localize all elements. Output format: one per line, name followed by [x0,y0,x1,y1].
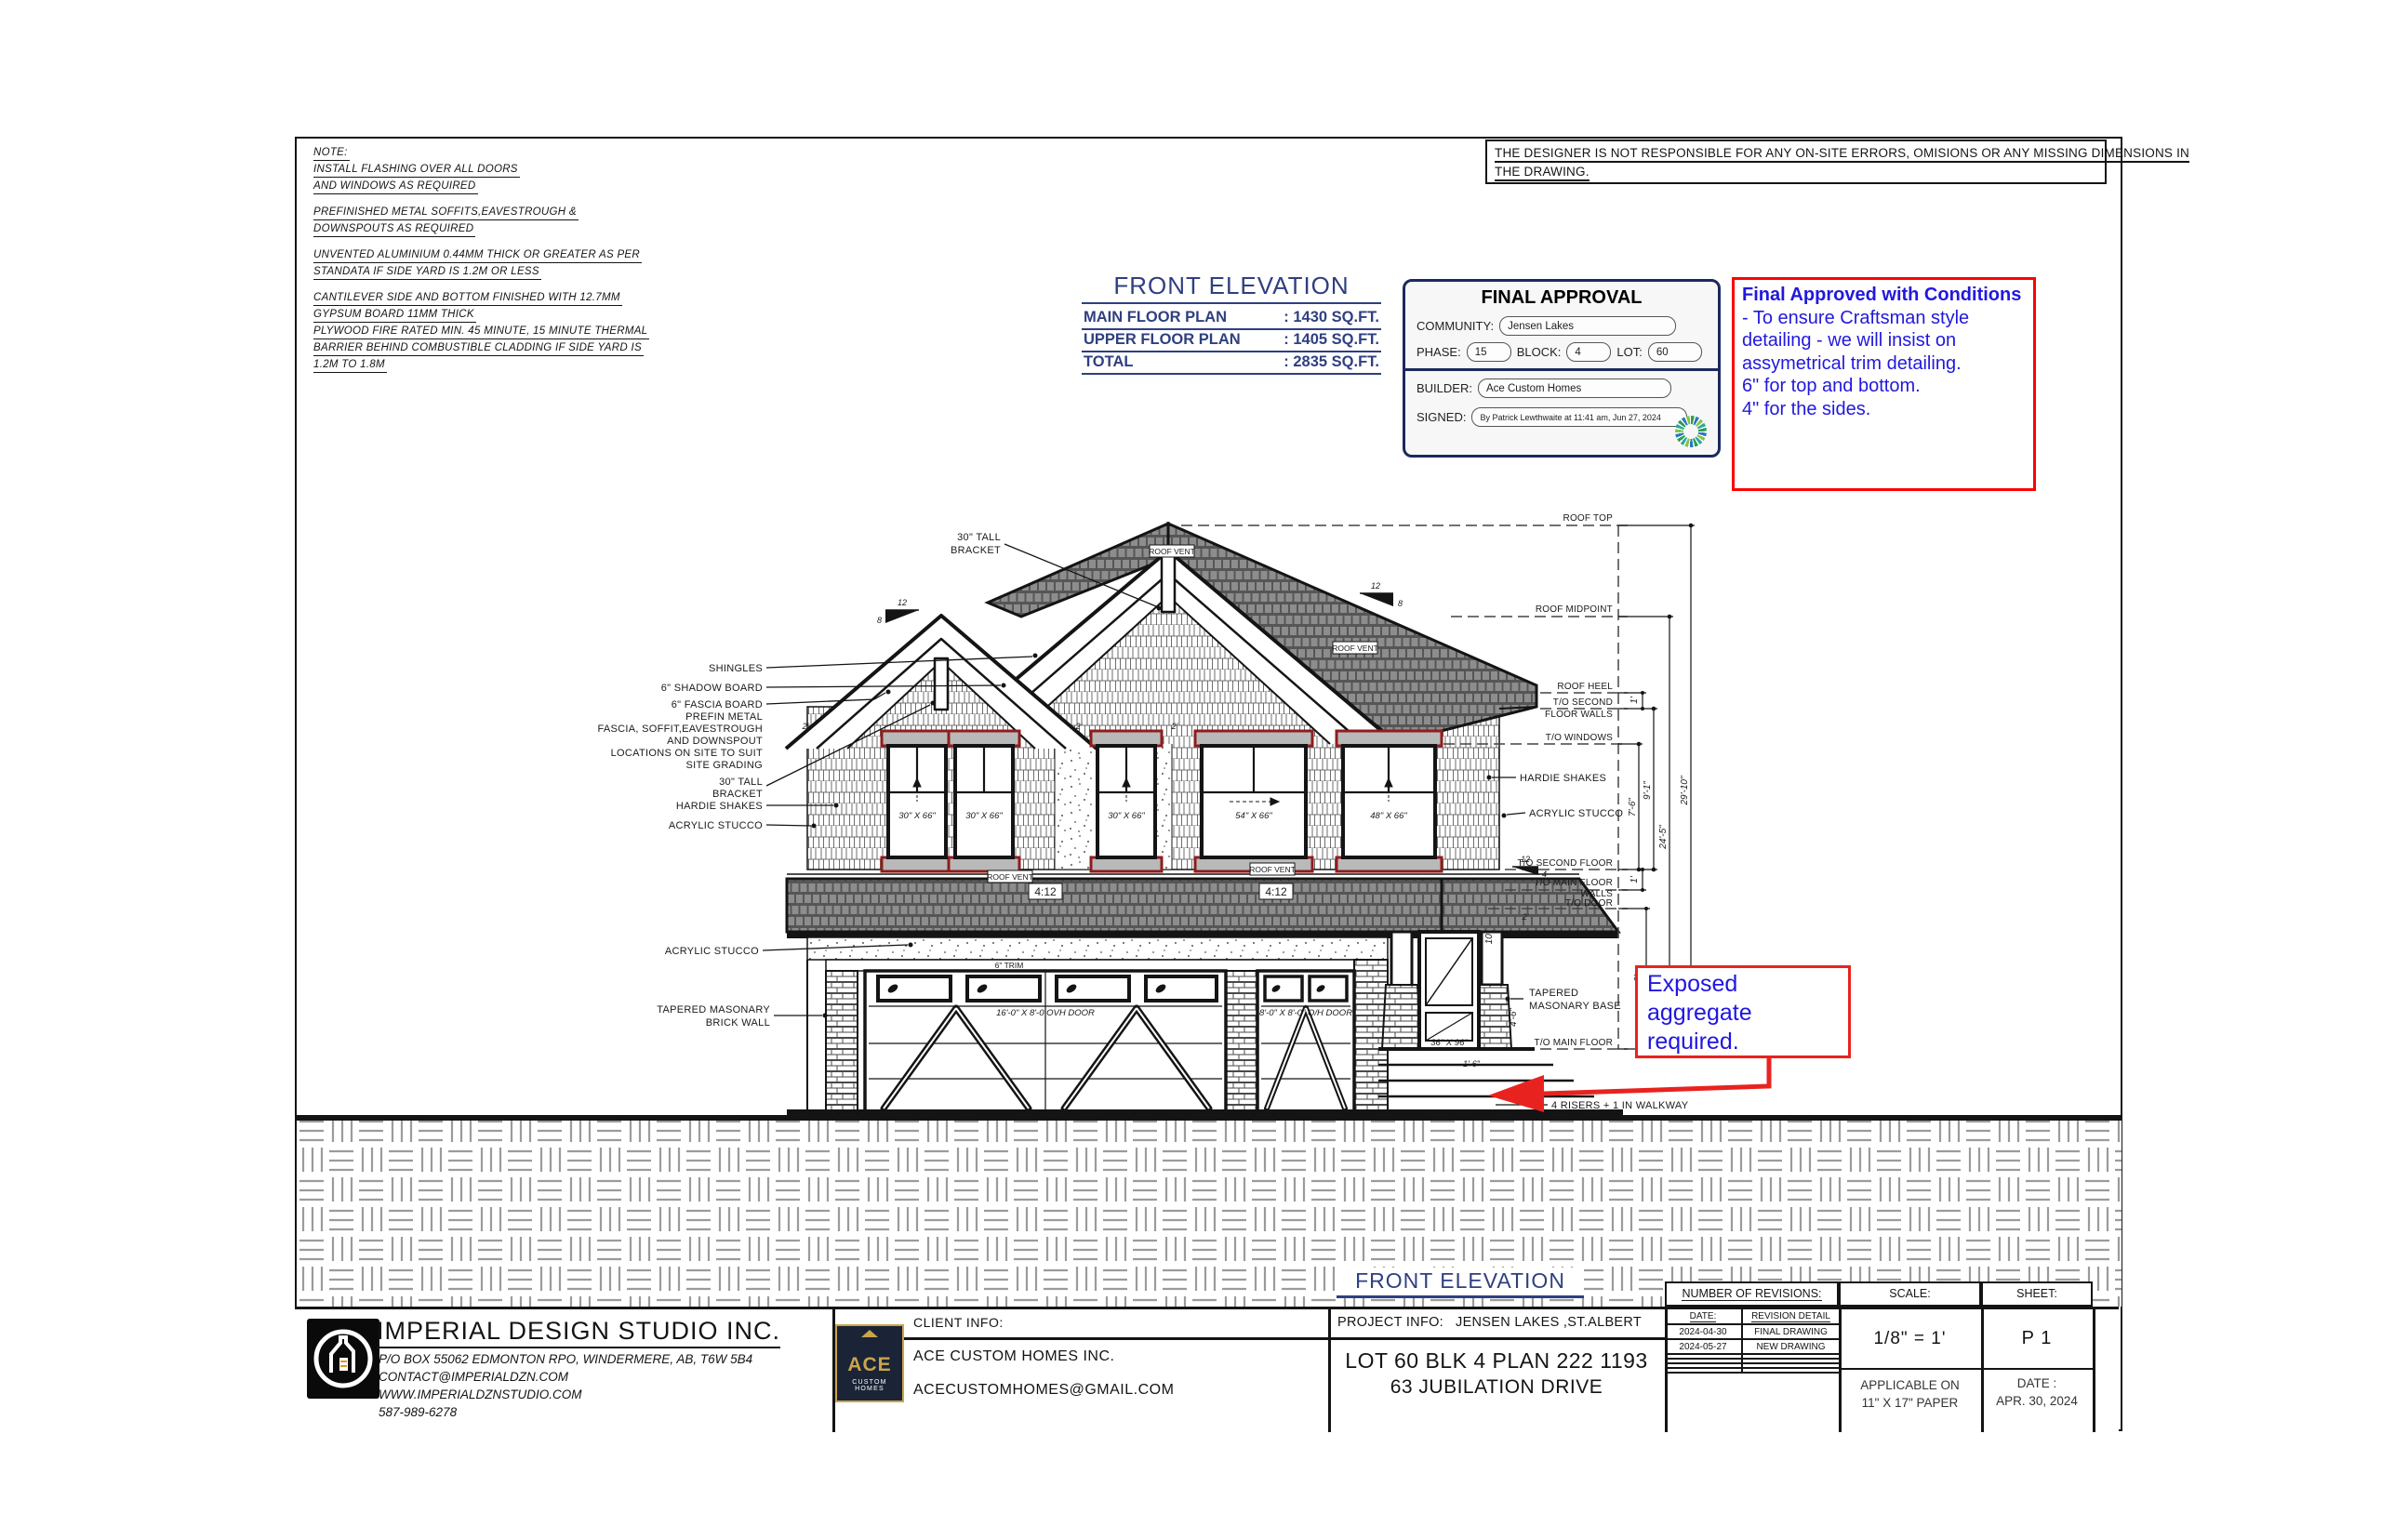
revision-date [1665,1364,1743,1367]
builder-field: Ace Custom Homes [1478,378,1671,398]
exposed-note-line: aggregate [1647,999,1839,1028]
scale-header-box: SCALE: [1839,1281,1981,1307]
community-label: COMMUNITY: [1417,319,1494,333]
callout-bracket-top: BRACKET [951,545,1001,556]
callout-acrylic-stucco: ACRYLIC STUCCO [665,946,759,957]
slope-num: 8 [877,616,882,625]
roof-vent-label: ROOF VENT [1249,865,1296,874]
dim-text: 2' [802,722,809,731]
paper-note-line: APPLICABLE ON [1839,1376,1981,1394]
disclaimer-line: THE DESIGNER IS NOT RESPONSIBLE FOR ANY … [1495,146,2189,163]
dim-text: 2' [1522,912,1529,922]
area-value: : 2835 SQ.FT. [1284,353,1379,371]
imperial-website: WWW.IMPERIALDZNSTUDIO.COM [379,1386,752,1403]
conditions-text: - To ensure Craftsman style detailing - … [1742,308,1969,374]
stamp-divider [1405,368,1718,371]
area-row: MAIN FLOOR PLAN : 1430 SQ.FT. [1082,308,1381,330]
callout-fascia: LOCATIONS ON SITE TO SUIT [611,748,763,759]
front-elevation-drawing: 30" X 66" 30" X 66" 30" X 66" 54" X 66" … [595,513,1832,1164]
callout-bracket-top: 30" TALL [957,532,1001,543]
window-size-label: 30" X 66" [965,811,1003,821]
window-size-label: 30" X 66" [1108,811,1145,821]
project-header-label: PROJECT INFO: [1337,1315,1443,1330]
imperial-email: CONTACT@IMPERIALDZN.COM [379,1368,752,1386]
callout-masonry-base: MASONARY BASE [1529,1001,1621,1012]
callout-acrylic-stucco: ACRYLIC STUCCO [669,820,763,831]
garage-door-double: 16'-0" X 8'-0 OVH DOOR [865,971,1226,1112]
client-email: ACECUSTOMHOMES@GMAIL.COM [913,1382,1174,1399]
note-line: PREFINISHED METAL SOFFITS,EAVESTROUGH & [313,206,579,220]
roof-slope-label: 4:12 [1265,885,1287,898]
revision-date: 2024-05-27 [1665,1340,1743,1353]
level-label: ROOF MIDPOINT [1536,604,1613,615]
revision-row: 2024-05-27 NEW DRAWING [1665,1340,1839,1355]
sheet-date: DATE : APR. 30, 2024 [1981,1374,2093,1410]
callout-acrylic-stucco: ACRYLIC STUCCO [1529,808,1623,819]
general-notes: NOTE: INSTALL FLASHING OVER ALL DOORS AN… [313,147,713,385]
dim-text: 1' [1629,875,1640,883]
revision-detail [1743,1369,1839,1372]
revision-detail [1743,1355,1839,1358]
imperial-name: IMPERIAL DESIGN STUDIO INC. [377,1317,780,1348]
phase-field: 15 [1467,342,1511,362]
stairs-label: 4 RISERS + 1 IN WALKWAY [1551,1100,1689,1111]
title-block: IMPERIAL DESIGN STUDIO INC. P/O BOX 5506… [295,1307,2119,1432]
sheet-header: SHEET: [2016,1287,2057,1300]
dim-text: 10" [1484,930,1495,944]
entry-porch: 36" X 96" [1378,932,1594,1096]
dim-text: 9'-1" [1643,781,1653,800]
dim-text: 29'-10" [1680,776,1690,805]
note-paragraph: CANTILEVER SIDE AND BOTTOM FINISHED WITH… [313,292,713,373]
level-label: T/O MAIN FLOOR [1535,1038,1613,1048]
ace-logo-text: ACE [837,1354,902,1376]
phase-label: PHASE: [1417,345,1461,359]
project-address-line: 63 JUBILATION DRIVE [1328,1376,1665,1399]
ace-logo-subtext: CUSTOM HOMES [837,1379,902,1392]
ace-roof-icon [861,1330,878,1337]
sheet-date-value: APR. 30, 2024 [1981,1392,2093,1410]
revision-date [1665,1360,1743,1362]
note-paragraph: INSTALL FLASHING OVER ALL DOORS AND WIND… [313,164,713,194]
note-line: UNVENTED ALUMINIUM 0.44MM THICK OR GREAT… [313,249,642,263]
revision-date [1665,1369,1743,1372]
note-line: INSTALL FLASHING OVER ALL DOORS [313,164,520,178]
revision-detail: NEW DRAWING [1743,1340,1839,1353]
roof-vent-label: ROOF VENT [1332,644,1378,653]
note-line: PLYWOOD FIRE RATED MIN. 45 MINUTE, 15 MI… [313,325,649,339]
elevation-title: FRONT ELEVATION [1082,272,1381,304]
conditions-line2: 6" for top and bottom. [1742,376,1921,396]
callout-masonry-wall: TAPERED MASONARY [657,1004,770,1016]
window-size-label: 30" X 66" [898,811,936,821]
dim-text: 2' [1171,722,1178,731]
scale-value: 1/8" = 1' [1839,1309,1981,1370]
builder-label: BUILDER: [1417,381,1472,395]
window-size-label: 54" X 66" [1235,811,1272,821]
drawing-title-label: FRONT ELEVATION [1337,1268,1584,1298]
designer-disclaimer: THE DESIGNER IS NOT RESPONSIBLE FOR ANY … [1485,139,2107,184]
block-label: BLOCK: [1517,345,1562,359]
callout-hardie-shakes: HARDIE SHAKES [1520,773,1606,784]
revisions-table: DATE: REVISION DETAIL 2024-04-30 FINAL D… [1665,1309,1839,1413]
elevation-summary: FRONT ELEVATION MAIN FLOOR PLAN : 1430 S… [1082,272,1381,375]
callout-bracket-left: 30" TALL [719,777,763,788]
lot-label: LOT: [1616,345,1642,359]
signed-field: By Patrick Lewthwaite at 11:41 am, Jun 2… [1471,407,1687,427]
callout-hardie-shakes: HARDIE SHAKES [676,801,763,812]
level-label: ROOF HEEL [1557,682,1613,692]
garage-door-size-label: 8'-0" X 8'-0" O/H DOOR [1259,1008,1352,1018]
conditions-line3: 4" for the sides. [1742,399,1870,419]
titleblock-divider [2093,1309,2095,1432]
sheet-number: P 1 [1981,1309,2093,1370]
exposed-note-line: Exposed [1647,970,1839,999]
paper-note-line: 11" X 17" PAPER [1839,1394,1981,1412]
dim-text: 2' [1075,722,1083,731]
level-label: ROOF TOP [1563,513,1614,524]
client-info-header: CLIENT INFO: [913,1315,1004,1330]
lot-field: 60 [1648,342,1702,362]
drawing-sheet: NOTE: INSTALL FLASHING OVER ALL DOORS AN… [0,0,2381,1540]
revision-date [1665,1355,1743,1358]
roof-vent-label: ROOF VENT [987,872,1033,882]
callout-masonry-wall: BRICK WALL [706,1017,770,1029]
callout-bracket-left: BRACKET [712,789,763,800]
callout-fascia: PREFIN METAL [685,711,763,723]
lower-roof: ROOF VENT 4:12 ROOF VENT 4:12 [787,863,1618,938]
garage-door-single: 8'-0" X 8'-0" O/H DOOR [1257,971,1354,1112]
area-value: : 1405 SQ.FT. [1284,331,1379,349]
roof-slope-label: 4:12 [1034,885,1057,898]
revisions-col-date: DATE: [1690,1311,1717,1322]
dim-text: 24'-5" [1658,825,1669,850]
imperial-address: P/O BOX 55062 EDMONTON RPO, WINDERMERE, … [379,1350,752,1368]
revision-date: 2024-04-30 [1665,1325,1743,1338]
callout-masonry-base: TAPERED [1529,988,1578,999]
revision-detail [1743,1360,1839,1362]
revision-row [1665,1369,1839,1374]
callout-fascia: SITE GRADING [686,760,763,771]
community-field: Jensen Lakes [1499,316,1676,336]
gable-bracket-post [1162,556,1175,612]
main-floor: 6" TRIM [787,932,1623,1112]
gable-bracket-post [935,658,948,710]
block-field: 4 [1566,342,1611,362]
dim-text: 1' [1629,696,1640,704]
dim-text: 4'-6" [1509,1008,1519,1027]
callout-fascia: FASCIA, SOFFIT,EAVESTROUGH [597,724,763,735]
note-paragraph: PREFINISHED METAL SOFFITS,EAVESTROUGH & … [313,206,713,237]
revisions-header-box: NUMBER OF REVISIONS: [1665,1281,1839,1307]
conditions-bold-text: Final Approved with Conditions [1742,285,2021,305]
imperial-logo [307,1319,379,1399]
dim-text: 1'-6" [1463,1059,1481,1069]
sheet-date-label: DATE : [1981,1374,2093,1392]
note-line: STANDATA IF SIDE YARD IS 1.2M OR LESS [313,266,541,280]
dim-text: 7'-6" [1628,798,1638,816]
e2-ring-logo-icon [1675,416,1707,447]
final-approval-stamp: FINAL APPROVAL COMMUNITY: Jensen Lakes P… [1403,279,1721,458]
note-line: DOWNSPOUTS AS REQUIRED [313,223,475,237]
slope-num: 12 [898,598,907,607]
level-label: T/O WINDOWS [1546,733,1613,743]
callout-shadow-board: 6" SHADOW BOARD [661,683,763,694]
roof-vent-label: ROOF VENT [1149,547,1195,556]
level-label: T/O DOOR [1565,898,1613,909]
level-label: FLOOR WALLS [1545,710,1613,720]
area-value: : 1430 SQ.FT. [1284,309,1379,326]
entry-door-size-label: 36" X 96" [1430,1038,1468,1048]
slope-num: 12 [1371,581,1380,591]
imperial-contact: P/O BOX 55062 EDMONTON RPO, WINDERMERE, … [379,1350,752,1421]
client-header-divider [832,1337,1328,1340]
slope-num: 8 [1398,599,1403,608]
note-paragraph: UNVENTED ALUMINIUM 0.44MM THICK OR GREAT… [313,249,713,280]
revisions-header: NUMBER OF REVISIONS: [1682,1287,1821,1301]
notes-title: NOTE: [313,147,350,161]
callout-fascia: 6" FASCIA BOARD [672,699,763,710]
project-header-divider [1328,1337,1665,1340]
exposed-note-line: required. [1647,1028,1839,1056]
area-row: UPPER FLOOR PLAN : 1405 SQ.FT. [1082,330,1381,352]
slope-num: 12 [1521,855,1530,864]
scale-header: SCALE: [1889,1287,1930,1300]
disclaimer-line: THE DRAWING. [1495,165,1590,181]
revision-detail: FINAL DRAWING [1743,1325,1839,1338]
note-line: AND WINDOWS AS REQUIRED [313,180,478,194]
signed-label: SIGNED: [1417,410,1466,424]
revision-row: 2024-04-30 FINAL DRAWING [1665,1325,1839,1340]
note-line: CANTILEVER SIDE AND BOTTOM FINISHED WITH… [313,292,622,306]
revisions-col-detail: REVISION DETAIL [1751,1311,1830,1322]
project-info-header: PROJECT INFO: JENSEN LAKES ,ST.ALBERT [1337,1315,1642,1330]
area-label: UPPER FLOOR PLAN [1084,331,1241,349]
project-header-value: JENSEN LAKES ,ST.ALBERT [1456,1315,1642,1330]
project-lot-line: LOT 60 BLK 4 PLAN 222 1193 [1328,1348,1665,1374]
sheet-header-box: SHEET: [1981,1281,2093,1307]
exposed-aggregate-note: Exposed aggregate required. [1635,965,1851,1058]
revision-detail [1743,1364,1839,1367]
paper-note: APPLICABLE ON 11" X 17" PAPER [1839,1376,1981,1412]
area-label: MAIN FLOOR PLAN [1084,309,1227,326]
area-row: TOTAL : 2835 SQ.FT. [1082,352,1381,375]
level-label: T/O SECOND [1553,697,1613,708]
trim-label: 6" TRIM [995,961,1024,970]
ace-custom-homes-logo: ACE CUSTOM HOMES [835,1324,904,1402]
level-label: T/O MAIN FLOOR [1535,878,1613,888]
slope-num: 4 [1542,870,1547,879]
note-line: 1.2M TO 1.8M [313,359,387,373]
revisions-header-row: DATE: REVISION DETAIL [1665,1309,1839,1325]
callout-fascia: AND DOWNSPOUT [667,736,763,747]
window-size-label: 48" X 66" [1370,811,1407,821]
note-line: GYPSUM BOARD 11MM THICK [313,309,476,323]
garage-door-size-label: 16'-0" X 8'-0 OVH DOOR [996,1008,1095,1018]
ground-hatch [297,1115,2122,1307]
imperial-phone: 587-989-6278 [379,1403,752,1421]
note-line: BARRIER BEHIND COMBUSTIBLE CLADDING IF S… [313,342,644,356]
area-label: TOTAL [1084,353,1133,371]
approval-conditions-note: Final Approved with Conditions - To ensu… [1732,277,2036,491]
stamp-title: FINAL APPROVAL [1417,287,1707,309]
callout-shingles: SHINGLES [709,663,763,674]
client-name: ACE CUSTOM HOMES INC. [913,1348,1114,1365]
